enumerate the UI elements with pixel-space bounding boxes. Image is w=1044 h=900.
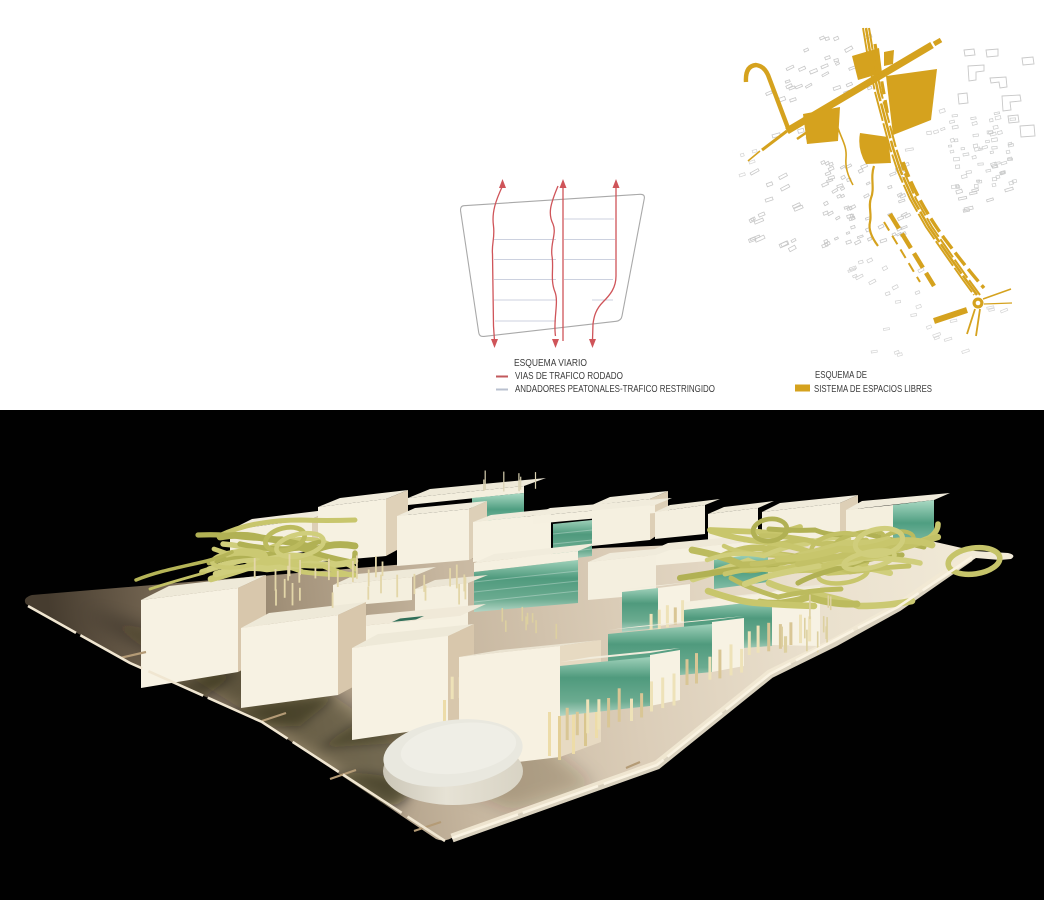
svg-text:SISTEMA DE ESPACIOS LIBRES: SISTEMA DE ESPACIOS LIBRES [814,384,932,395]
svg-text:VIAS DE TRAFICO RODADO: VIAS DE TRAFICO RODADO [515,371,623,382]
svg-text:ANDADORES PEATONALES-TRAFICO R: ANDADORES PEATONALES-TRAFICO RESTRINGIDO [515,384,715,395]
svg-text:ESQUEMA VIARIO: ESQUEMA VIARIO [514,358,587,369]
svg-text:ESQUEMA DE: ESQUEMA DE [815,370,867,381]
